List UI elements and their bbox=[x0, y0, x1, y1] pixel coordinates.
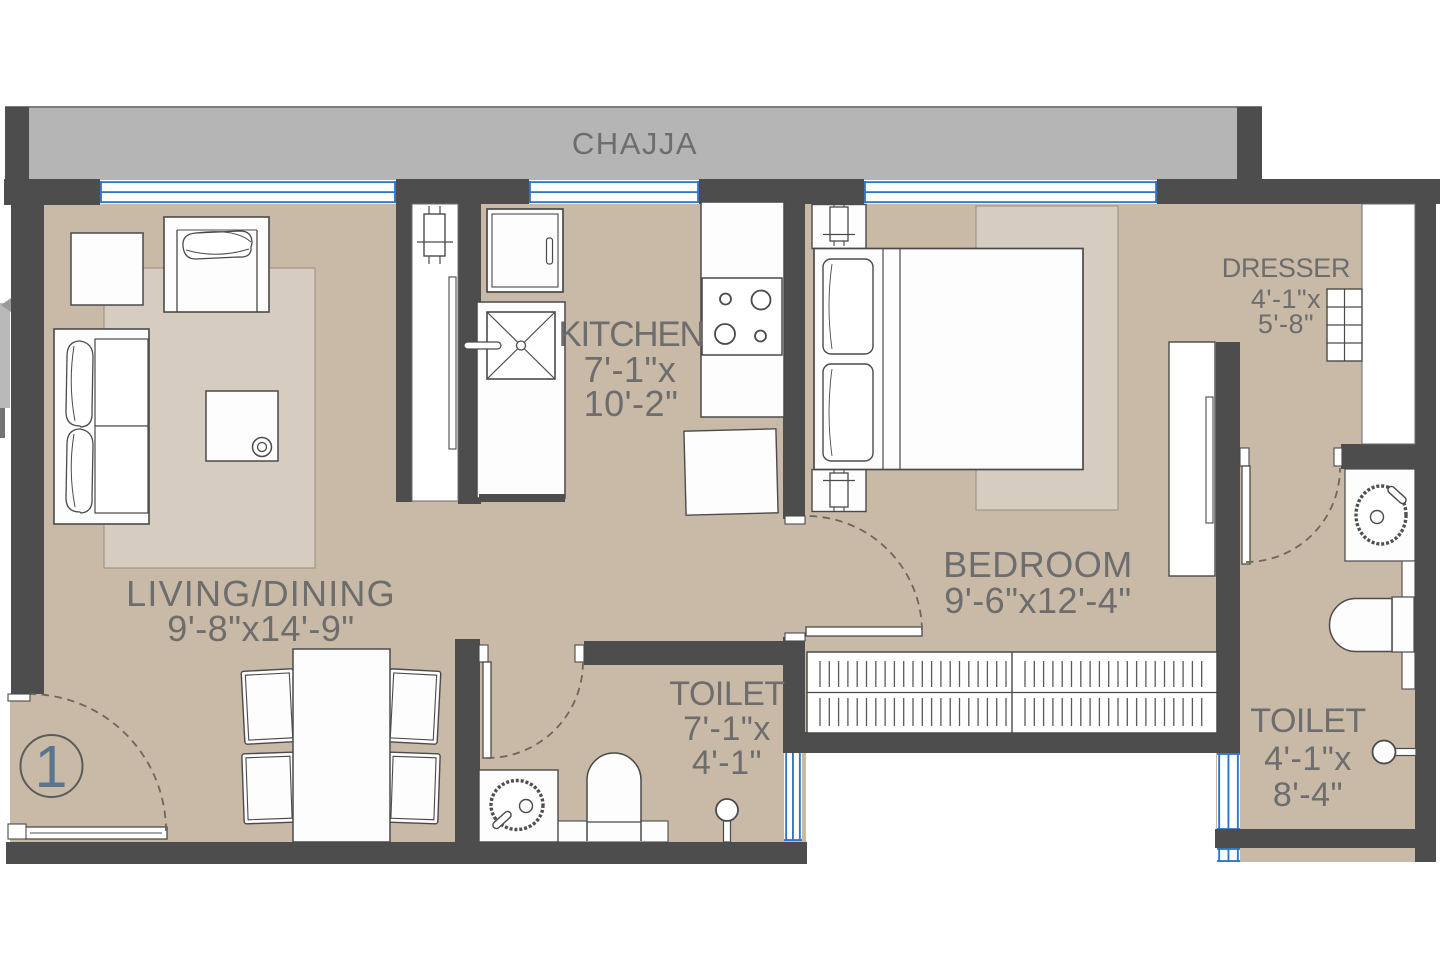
svg-text:1: 1 bbox=[35, 734, 68, 800]
svg-text:8'-4": 8'-4" bbox=[1273, 776, 1343, 814]
svg-text:4'-1": 4'-1" bbox=[692, 744, 762, 782]
svg-text:TOILET: TOILET bbox=[1250, 702, 1365, 740]
svg-text:4'-1"x: 4'-1"x bbox=[1264, 740, 1352, 778]
svg-text:10'-2": 10'-2" bbox=[584, 383, 679, 424]
svg-text:9'-8"x14'-9": 9'-8"x14'-9" bbox=[167, 608, 354, 649]
svg-text:9'-6"x12'-4": 9'-6"x12'-4" bbox=[944, 580, 1131, 621]
svg-text:DRESSER: DRESSER bbox=[1222, 253, 1350, 283]
svg-text:TOILET: TOILET bbox=[669, 675, 784, 713]
svg-text:CHAJJA: CHAJJA bbox=[572, 126, 698, 161]
svg-text:BEDROOM: BEDROOM bbox=[943, 544, 1133, 585]
svg-text:5'-8": 5'-8" bbox=[1258, 309, 1314, 339]
svg-text:7'-1"x: 7'-1"x bbox=[683, 710, 771, 748]
